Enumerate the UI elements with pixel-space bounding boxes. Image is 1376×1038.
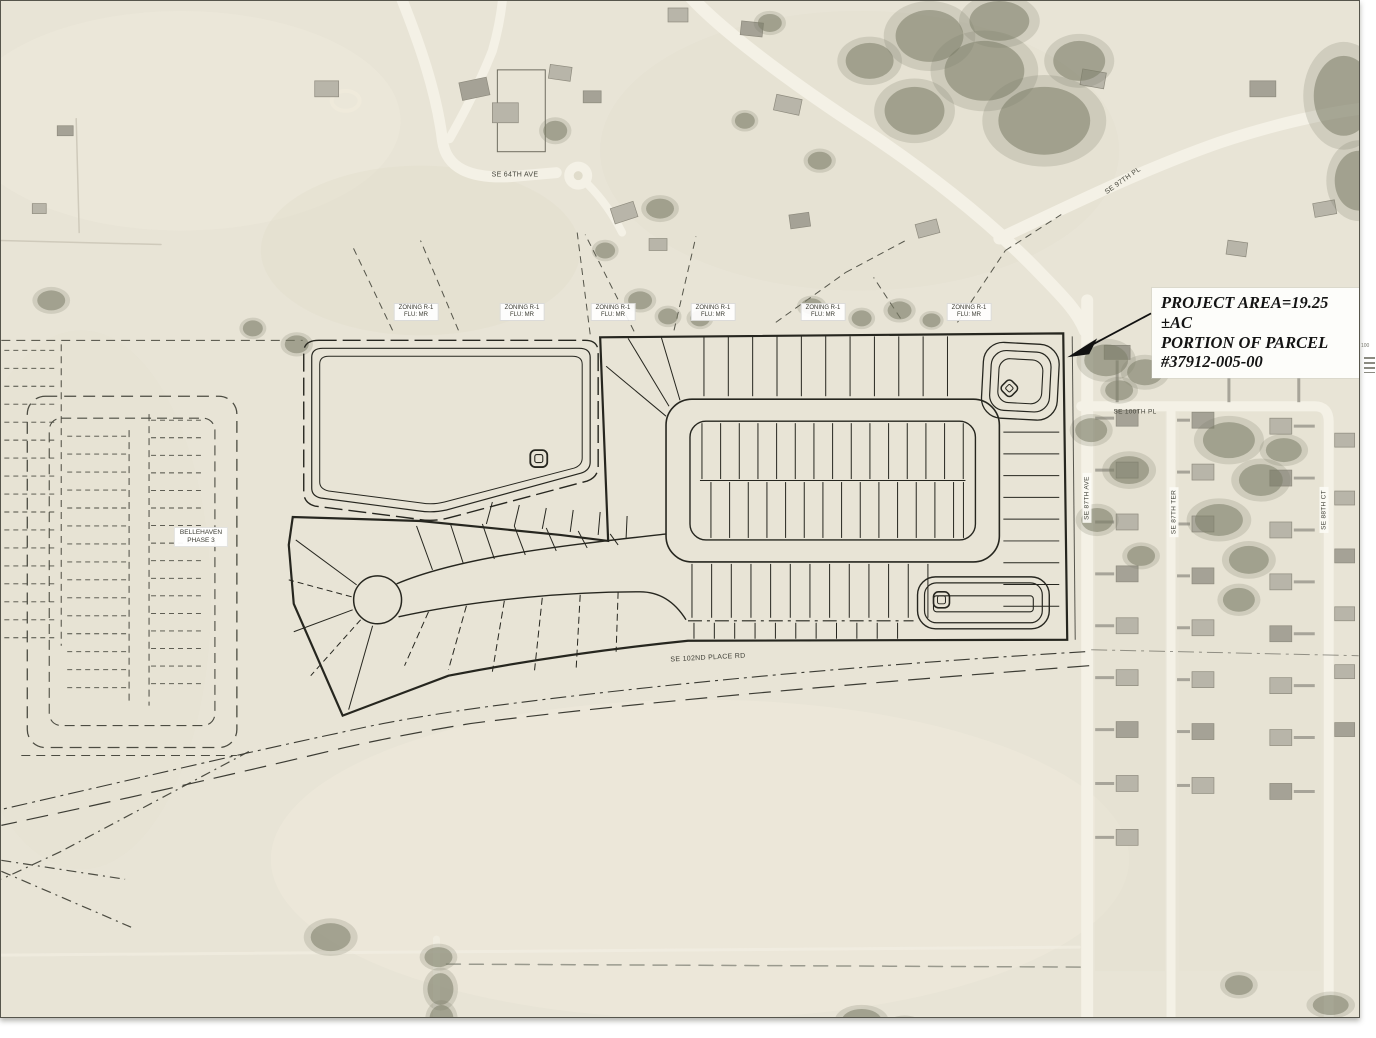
house — [649, 239, 667, 251]
aerial-map-frame: PROJECT AREA=19.25 ±AC PORTION OF PARCEL… — [0, 0, 1360, 1018]
house — [1116, 618, 1138, 634]
house — [1270, 730, 1292, 746]
house — [1116, 514, 1138, 530]
house — [1192, 568, 1214, 584]
plan-sheet: PROJECT AREA=19.25 ±AC PORTION OF PARCEL… — [0, 0, 1376, 1038]
house — [668, 8, 688, 22]
house — [1226, 240, 1248, 257]
tree — [1203, 422, 1255, 458]
tree — [658, 308, 678, 324]
house — [1192, 464, 1214, 480]
tree — [1223, 588, 1255, 612]
house — [1335, 549, 1355, 563]
project-area-line2: PORTION OF PARCEL — [1161, 333, 1350, 353]
house — [1192, 777, 1214, 793]
house — [1270, 678, 1292, 694]
tree — [1109, 456, 1149, 484]
tree — [852, 310, 872, 326]
tree — [37, 290, 65, 310]
house — [315, 81, 339, 97]
house — [1270, 626, 1292, 642]
tree — [998, 87, 1090, 155]
tree — [846, 43, 894, 79]
zoning-label-2: ZONING R-1FLU: MR — [500, 303, 545, 321]
house — [548, 64, 572, 81]
tree — [885, 87, 945, 135]
house — [1116, 722, 1138, 738]
house — [1192, 672, 1214, 688]
house — [1250, 81, 1276, 97]
tree — [1239, 464, 1283, 496]
zoning-label-4: ZONING R-1FLU: MR — [691, 303, 736, 321]
street-label-se-87th-ter: SE 87TH TER — [1170, 487, 1179, 537]
house — [1335, 607, 1355, 621]
aerial-base-layer — [1, 1, 1359, 1017]
tree — [808, 152, 832, 170]
tree — [1075, 418, 1107, 442]
tree — [923, 313, 941, 327]
house — [1270, 783, 1292, 799]
house — [1335, 665, 1355, 679]
house — [1270, 418, 1292, 434]
house — [1270, 522, 1292, 538]
house — [1192, 724, 1214, 740]
tree — [969, 1, 1029, 41]
house — [583, 91, 601, 103]
house — [1335, 491, 1355, 505]
tree — [1105, 380, 1133, 400]
house — [57, 126, 73, 136]
tree — [1195, 504, 1243, 536]
house — [32, 204, 46, 214]
zoning-label-5: ZONING R-1FLU: MR — [801, 303, 846, 321]
house — [789, 212, 811, 229]
street-label-se-64th-ave: SE 64TH AVE — [492, 172, 539, 179]
house — [1270, 574, 1292, 590]
tree — [1053, 41, 1105, 81]
street-label-se-88th-ct: SE 88TH CT — [1320, 487, 1329, 533]
tree — [1313, 995, 1349, 1015]
tree — [543, 121, 567, 141]
house — [1116, 775, 1138, 791]
cul-de-sac-island — [574, 171, 583, 180]
zoning-label-3: ZONING R-1FLU: MR — [591, 303, 636, 321]
tree — [735, 113, 755, 129]
project-area-line1: PROJECT AREA=19.25 ±AC — [1161, 293, 1350, 333]
margin-scale-bar-icon — [1364, 357, 1375, 373]
subdivision-phase-label: BELLEHAVENPHASE 3 — [174, 527, 228, 547]
annotation-project-area: PROJECT AREA=19.25 ±AC PORTION OF PARCEL… — [1152, 288, 1359, 378]
siteplan-drawing — [1, 1, 1359, 1017]
tree — [243, 320, 263, 336]
house — [492, 103, 518, 123]
tree — [888, 301, 912, 319]
zoning-label-6: ZONING R-1FLU: MR — [947, 303, 992, 321]
tree — [1266, 438, 1302, 462]
street-label-se-87th-ave: SE 87TH AVE — [1083, 473, 1092, 523]
margin-scale-text: 100 — [1361, 343, 1369, 349]
tree — [646, 199, 674, 219]
house — [1335, 723, 1355, 737]
tree — [1127, 546, 1155, 566]
house — [1335, 433, 1355, 447]
tree — [425, 947, 453, 967]
tree — [1225, 975, 1253, 995]
house — [1116, 829, 1138, 845]
tree — [285, 335, 309, 353]
house — [1192, 620, 1214, 636]
tree — [595, 243, 615, 259]
project-area-line3: #37912-005-00 — [1161, 352, 1350, 372]
house — [1116, 670, 1138, 686]
tree — [758, 14, 782, 32]
zoning-label-1: ZONING R-1FLU: MR — [394, 303, 439, 321]
tree — [311, 923, 351, 951]
tree — [1229, 546, 1269, 574]
street-label-se-100th-pl: SE 100TH PL — [1113, 409, 1156, 416]
